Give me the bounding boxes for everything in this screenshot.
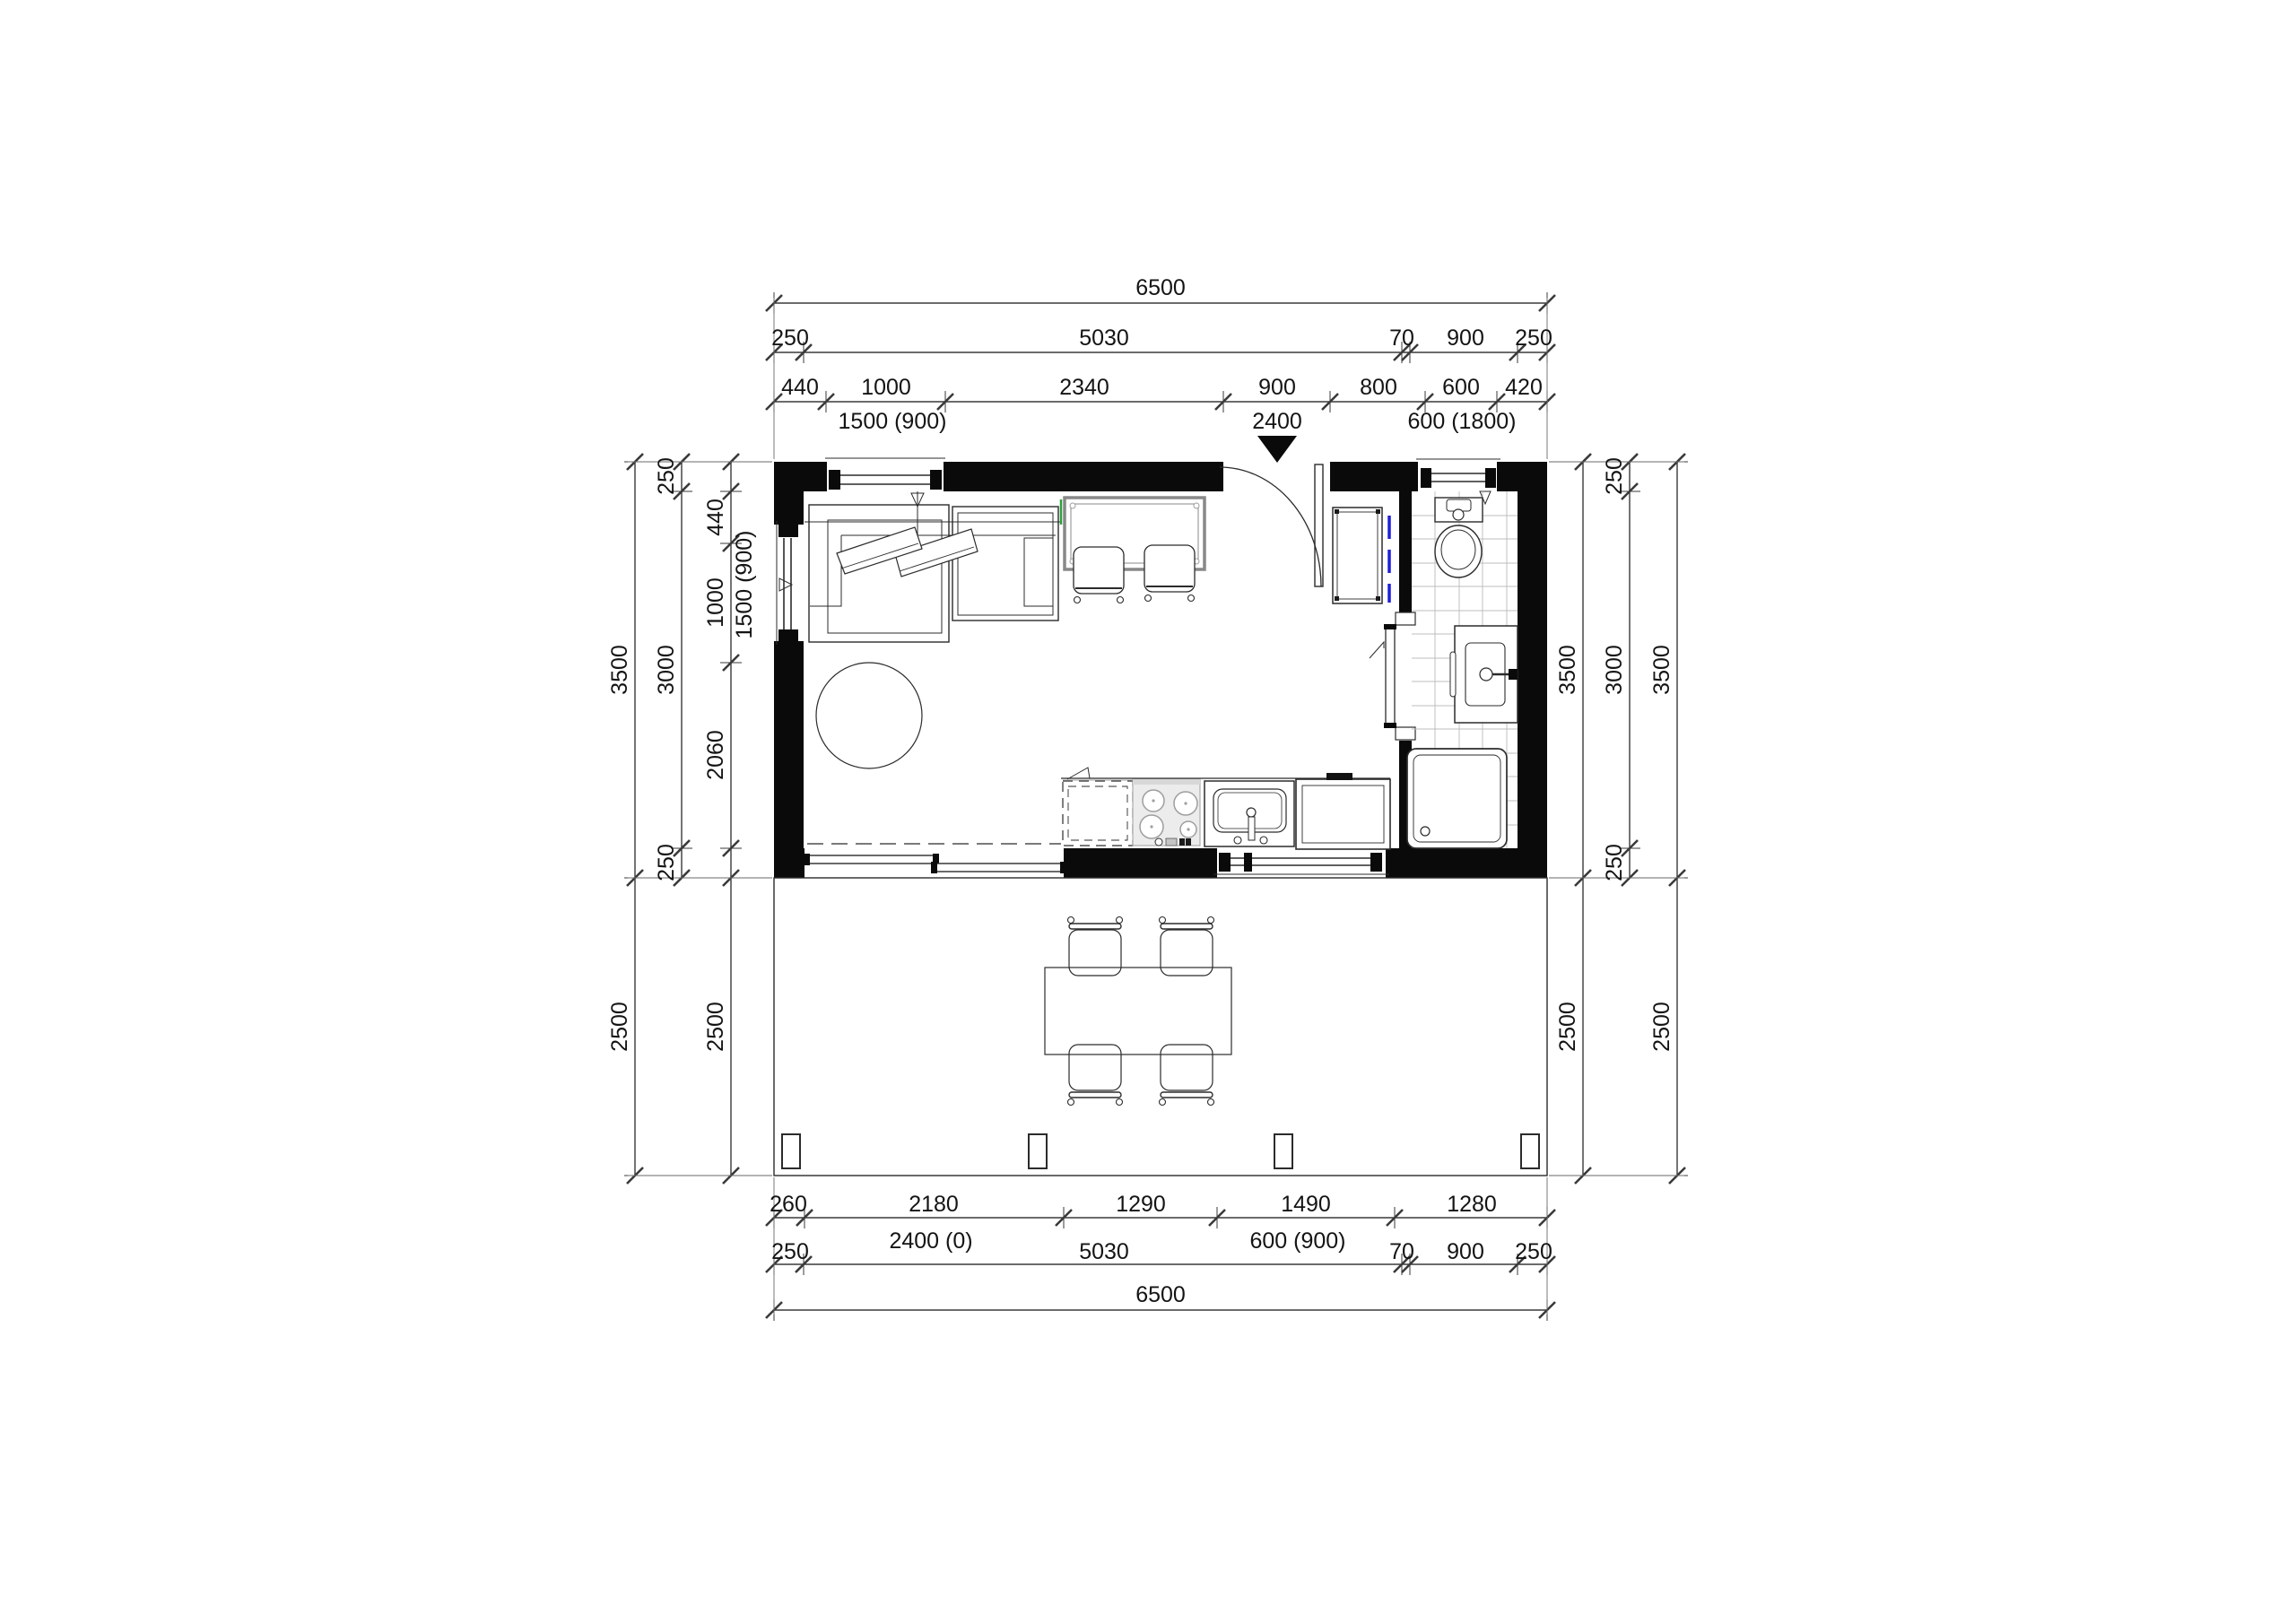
dim-label: 2180 — [909, 1192, 959, 1217]
opening-label: 2400 (0) — [889, 1228, 972, 1254]
dim-label: 1290 — [1116, 1192, 1166, 1217]
dim-label: 250 — [771, 325, 809, 351]
stool — [1144, 545, 1195, 602]
dim-label: 250 — [654, 844, 679, 881]
dim-label: 3000 — [1602, 645, 1627, 695]
kitchen-fridge — [1296, 773, 1390, 849]
opening-label: 1500 (900) — [839, 409, 947, 434]
dim-label: 440 — [703, 499, 728, 536]
dim-line-bottom-walls — [766, 1254, 1555, 1275]
dim-label: 900 — [1258, 375, 1296, 400]
round-rug — [816, 663, 922, 768]
dim-label: 420 — [1505, 375, 1543, 400]
dim-line-right-outer — [1666, 454, 1688, 1184]
kitchen-sink — [1205, 781, 1294, 846]
stool — [1074, 547, 1124, 603]
dim-label: 440 — [781, 375, 819, 400]
dim-label: 900 — [1447, 1239, 1484, 1264]
desk-with-stools — [1061, 498, 1205, 603]
dim-label: 5030 — [1079, 325, 1129, 351]
dim-label: 250 — [1602, 457, 1627, 495]
dim-label: 6500 — [1135, 1282, 1186, 1307]
dim-label: 5030 — [1079, 1239, 1129, 1264]
outdoor-table — [1045, 968, 1231, 1055]
dim-label: 6500 — [1135, 275, 1186, 300]
opening-label: 600 (900) — [1249, 1228, 1345, 1254]
opening-label: 2400 — [1252, 409, 1302, 434]
dim-label: 2340 — [1059, 375, 1109, 400]
dim-label: 250 — [1515, 1239, 1552, 1264]
bathroom-sink-vanity — [1450, 626, 1518, 723]
dimension-labels-bottom: 260 2180 1290 1490 1280 2400 (0) 600 (90… — [770, 1192, 1552, 1307]
dim-label: 3500 — [1555, 645, 1580, 695]
terrace-post — [1274, 1134, 1292, 1168]
dim-label: 250 — [771, 1239, 809, 1264]
dimension-labels-right: 3500 2500 250 3000 250 3500 2500 — [1555, 457, 1674, 1052]
sofa-cushions — [837, 527, 978, 577]
dim-label: 600 — [1442, 375, 1480, 400]
dim-label: 2500 — [607, 1002, 632, 1052]
dim-label: 900 — [1447, 325, 1484, 351]
dim-line-right-inner — [1572, 454, 1594, 1184]
opening-label: 600 (1800) — [1408, 409, 1517, 434]
dim-label: 250 — [654, 457, 679, 495]
dim-label: 2500 — [1555, 1002, 1580, 1052]
terrace — [774, 878, 1547, 1176]
dim-line-top-walls — [766, 342, 1555, 363]
dim-label: 2500 — [1649, 1002, 1674, 1052]
dimension-labels-top: 6500 250 5030 70 900 250 440 1000 2340 9… — [771, 275, 1552, 434]
kitchen-cabinet-dishwasher — [1063, 768, 1133, 846]
dim-label: 250 — [1515, 325, 1552, 351]
dim-line-left-total — [624, 454, 646, 1184]
opening-label: 1500 (900) — [732, 531, 757, 639]
dim-label: 70 — [1389, 1239, 1414, 1264]
entrance-arrow — [1257, 436, 1297, 463]
dim-label: 1000 — [703, 577, 728, 628]
dim-label: 1280 — [1447, 1192, 1497, 1217]
floor-plan-drawing: 6500 250 5030 70 900 250 440 1000 2340 9… — [0, 0, 2296, 1623]
terrace-post — [782, 1134, 800, 1168]
outdoor-chair — [1068, 917, 1123, 976]
wardrobe — [1333, 508, 1382, 603]
dim-label: 3500 — [1649, 645, 1674, 695]
dim-label: 2060 — [703, 730, 728, 780]
terrace-post — [1029, 1134, 1047, 1168]
dim-label: 3500 — [607, 645, 632, 695]
dim-label: 1000 — [861, 375, 911, 400]
dim-label: 1490 — [1281, 1192, 1331, 1217]
toilet — [1435, 498, 1483, 577]
dim-label: 260 — [770, 1192, 807, 1217]
shower — [1407, 749, 1507, 848]
dim-label: 3000 — [654, 645, 679, 695]
fridge-handle — [1326, 773, 1352, 780]
floor-plan-canvas: 6500 250 5030 70 900 250 440 1000 2340 9… — [0, 0, 2296, 1623]
dim-label: 800 — [1360, 375, 1397, 400]
outdoor-chair — [1160, 917, 1214, 976]
sofa — [804, 505, 1061, 642]
kitchen-stove — [1133, 779, 1200, 846]
dim-label: 70 — [1389, 325, 1414, 351]
dim-label: 250 — [1602, 844, 1627, 881]
terrace-post — [1521, 1134, 1539, 1168]
dim-label: 2500 — [703, 1002, 728, 1052]
